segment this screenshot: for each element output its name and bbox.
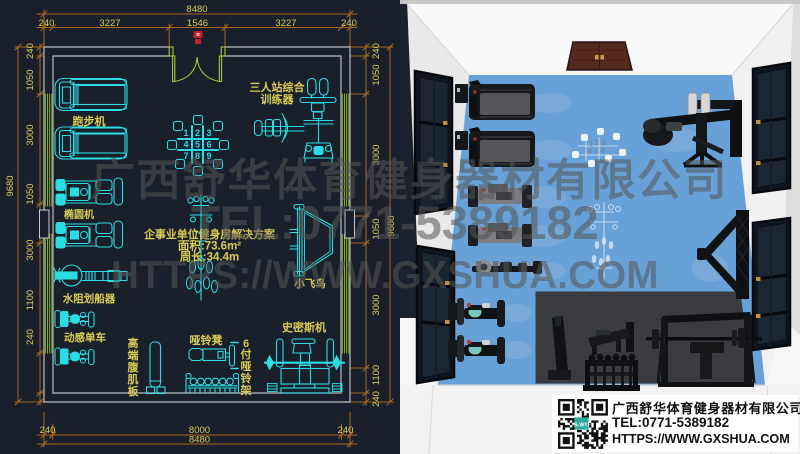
- svg-text:3000: 3000: [25, 239, 36, 260]
- svg-text:3: 3: [206, 128, 211, 138]
- svg-text:哑: 哑: [241, 360, 252, 373]
- svg-text:1546: 1546: [187, 18, 208, 29]
- svg-text:哑铃凳: 哑铃凳: [190, 333, 224, 347]
- svg-text:3227: 3227: [275, 18, 296, 29]
- svg-text:水阻划船器: 水阻划船器: [62, 292, 116, 305]
- svg-text:S-WYF: S-WYF: [574, 423, 590, 429]
- svg-text:椭圆机: 椭圆机: [64, 208, 94, 221]
- svg-text:高: 高: [128, 336, 139, 350]
- svg-text:8480: 8480: [189, 435, 210, 446]
- svg-text:端: 端: [128, 348, 139, 362]
- svg-text:史密斯机: 史密斯机: [282, 320, 326, 334]
- svg-text:240: 240: [40, 425, 56, 436]
- svg-text:1100: 1100: [25, 290, 36, 310]
- svg-text:动感单车: 动感单车: [64, 331, 106, 344]
- svg-text:8480: 8480: [186, 4, 207, 15]
- svg-text:1050: 1050: [25, 183, 36, 204]
- svg-text:1050: 1050: [25, 69, 36, 90]
- svg-text:9680: 9680: [5, 175, 16, 196]
- svg-text:1050: 1050: [371, 64, 382, 85]
- svg-text:240: 240: [341, 18, 357, 29]
- svg-text:板: 板: [128, 384, 140, 398]
- svg-text:训练器: 训练器: [261, 92, 295, 106]
- svg-text:240: 240: [25, 329, 36, 345]
- svg-text:三人站综合: 三人站综合: [250, 80, 306, 94]
- svg-text:腹: 腹: [128, 360, 140, 374]
- svg-text:240: 240: [338, 425, 354, 436]
- svg-text:3000: 3000: [25, 124, 36, 145]
- svg-text:240: 240: [371, 391, 382, 407]
- svg-text:1: 1: [183, 128, 188, 138]
- svg-text:240: 240: [371, 43, 382, 59]
- svg-text:肌: 肌: [127, 372, 139, 386]
- svg-text:3227: 3227: [99, 18, 120, 29]
- svg-text:240: 240: [25, 43, 36, 59]
- svg-text:240: 240: [39, 18, 55, 29]
- svg-text:付: 付: [241, 347, 252, 361]
- svg-text:2: 2: [195, 128, 200, 138]
- svg-text:1100: 1100: [371, 365, 382, 385]
- svg-text:跑步机: 跑步机: [73, 114, 106, 128]
- svg-text:铃: 铃: [241, 371, 252, 385]
- svg-text:架: 架: [240, 383, 252, 397]
